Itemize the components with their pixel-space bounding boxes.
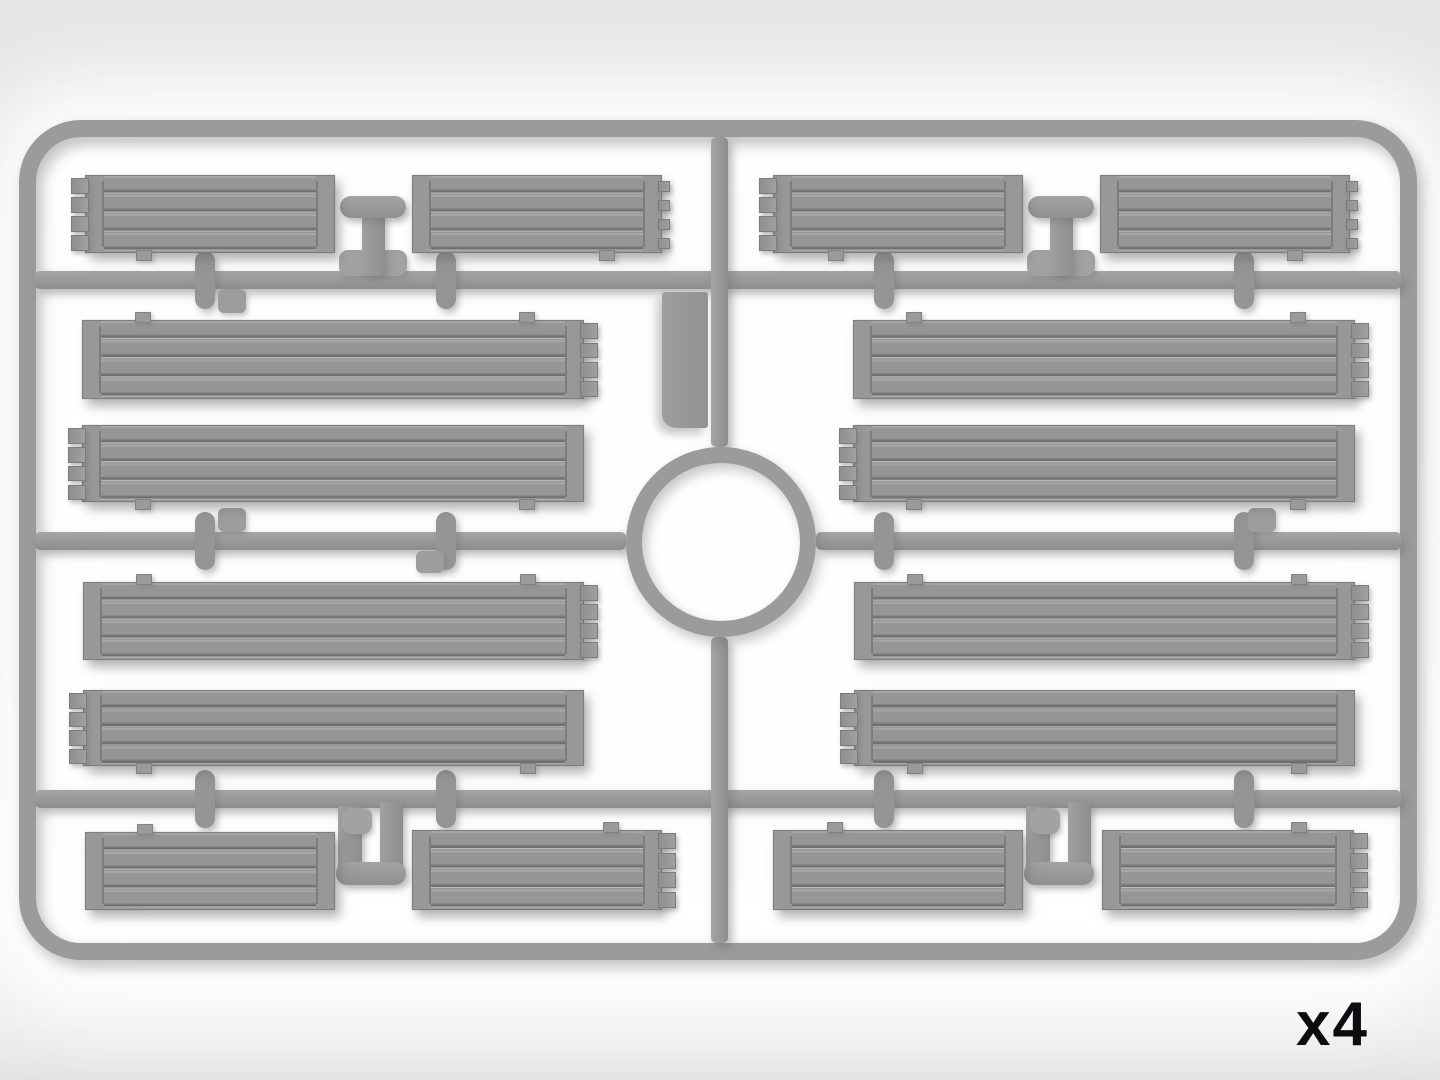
gate-web [218, 289, 246, 313]
gate-stub [195, 251, 215, 309]
bottom-connector-foot [342, 808, 372, 834]
edge-tab [1290, 312, 1306, 323]
hinge-tooth [658, 200, 670, 212]
gate-stub [436, 770, 456, 828]
plank-part [854, 690, 1355, 766]
hinge-tooth [1351, 362, 1369, 378]
plank-part [854, 582, 1355, 660]
plank-part [83, 690, 584, 766]
sprue-rail [35, 532, 626, 550]
t-connector-bar [1028, 196, 1094, 218]
hinge-tooth [68, 447, 86, 463]
plank-end-cap [316, 833, 334, 909]
edge-tab [137, 824, 153, 835]
plank-end-tick [102, 838, 104, 905]
hinge-tooth [658, 238, 670, 250]
plank-end-tick [1336, 588, 1338, 655]
hinge-tooth [68, 466, 86, 482]
t-connector-post [362, 214, 385, 276]
plank-end-tick [102, 181, 104, 248]
edge-tab [519, 499, 535, 510]
edge-tab [603, 822, 619, 833]
plank-end-tick [429, 181, 431, 248]
center-ring [626, 447, 816, 637]
hinge-tooth [580, 623, 598, 639]
hinge-tooth [71, 235, 89, 251]
hinge-tooth [69, 730, 87, 745]
plank-part [82, 320, 584, 399]
edge-tab [907, 763, 923, 774]
hinge-tooth [1351, 642, 1369, 658]
hinge-tooth [1350, 892, 1368, 908]
hinge-tooth [839, 466, 857, 482]
plank-end-cap [1336, 691, 1354, 765]
plank-end-tick [1004, 181, 1006, 248]
plank-end-tick [1336, 695, 1338, 760]
edge-tab [520, 574, 536, 585]
hinge-tooth [69, 693, 87, 708]
bottom-connector-bar [1024, 862, 1094, 885]
plank-end-tick [99, 431, 101, 497]
hinge-tooth [658, 872, 676, 888]
plank-end-tick [871, 588, 873, 655]
edge-tab [1290, 499, 1306, 510]
flat-tab-part [662, 292, 708, 428]
hinge-tooth [840, 693, 858, 708]
quantity-label: x4 [1296, 994, 1369, 1056]
plank-part [82, 425, 584, 502]
edge-tab [136, 574, 152, 585]
hinge-tooth [840, 730, 858, 745]
plank-end-tick [870, 326, 872, 394]
plank-end-tick [643, 836, 645, 905]
gate-stub [195, 512, 215, 570]
plank-end-cap [1336, 426, 1354, 501]
edge-tab [135, 499, 151, 510]
t-connector-post [1050, 214, 1073, 276]
hinge-tooth [840, 749, 858, 764]
hinge-tooth [68, 428, 86, 444]
gate-stub [1234, 770, 1254, 828]
hinge-tooth [71, 178, 89, 194]
gate-stub [874, 251, 894, 309]
plank-end-cap [565, 691, 583, 765]
hinge-tooth [580, 585, 598, 601]
edge-tab [906, 499, 922, 510]
hinge-tooth [759, 197, 777, 213]
hinge-tooth [759, 178, 777, 194]
hinge-tooth [580, 362, 598, 378]
plank-end-tick [1117, 181, 1119, 248]
plank-end-cap [1004, 176, 1022, 252]
plank-part [85, 832, 335, 910]
sprue-rail [816, 532, 1401, 550]
gate-web [218, 508, 246, 532]
plank-part [412, 175, 662, 253]
hinge-tooth [658, 219, 670, 231]
hinge-tooth [69, 749, 87, 764]
hinge-tooth [1351, 623, 1369, 639]
hinge-tooth [580, 343, 598, 359]
sprue-illustration: x4 [0, 0, 1440, 1080]
hinge-tooth [759, 216, 777, 232]
plank-end-tick [565, 695, 567, 760]
hinge-tooth [1351, 323, 1369, 339]
hinge-tooth [840, 712, 858, 727]
plank-end-tick [565, 588, 567, 655]
hinge-tooth [580, 642, 598, 658]
gate-web [1248, 508, 1276, 532]
hinge-tooth [658, 181, 670, 193]
edge-tab [519, 312, 535, 323]
hinge-tooth [1346, 219, 1358, 231]
plank-part [773, 830, 1023, 910]
sprue-frame-assembly [0, 0, 1440, 1080]
gate-stub [874, 770, 894, 828]
plank-end-tick [1335, 836, 1337, 905]
plank-part [83, 582, 584, 660]
hinge-tooth [1350, 872, 1368, 888]
plank-part [773, 175, 1023, 253]
plank-end-tick [870, 431, 872, 497]
edge-tab [827, 822, 843, 833]
hinge-tooth [68, 485, 86, 501]
plank-end-tick [565, 431, 567, 497]
gate-stub [195, 770, 215, 828]
hinge-tooth [69, 712, 87, 727]
plank-end-cap [316, 176, 334, 252]
bottom-connector-foot [1030, 808, 1060, 834]
hinge-tooth [1346, 238, 1358, 250]
gate-stub [1234, 251, 1254, 309]
plank-end-tick [565, 326, 567, 394]
hinge-tooth [658, 892, 676, 908]
hinge-tooth [580, 604, 598, 620]
bottom-connector-post [380, 802, 403, 868]
plank-end-tick [99, 326, 101, 394]
plank-end-cap [1004, 831, 1022, 909]
plank-end-tick [100, 695, 102, 760]
hinge-tooth [1351, 343, 1369, 359]
plank-end-tick [316, 838, 318, 905]
gate-web [416, 551, 444, 573]
hinge-tooth [1351, 604, 1369, 620]
plank-end-tick [1004, 836, 1006, 905]
plank-part [853, 425, 1355, 502]
hinge-tooth [1350, 833, 1368, 849]
sprue-rail [711, 637, 728, 943]
edge-tab [135, 312, 151, 323]
hinge-tooth [1346, 181, 1358, 193]
plank-end-tick [1336, 326, 1338, 394]
plank-part [1100, 175, 1350, 253]
plank-end-tick [316, 181, 318, 248]
plank-part [85, 175, 335, 253]
bottom-connector-bar [336, 862, 406, 885]
edge-tab [907, 574, 923, 585]
plank-end-tick [790, 836, 792, 905]
plank-end-tick [643, 181, 645, 248]
hinge-tooth [839, 485, 857, 501]
sprue-rail [711, 137, 728, 447]
plank-end-cap [565, 426, 583, 501]
plank-end-tick [1336, 431, 1338, 497]
edge-tab [1287, 250, 1303, 261]
plank-part [412, 830, 662, 910]
hinge-tooth [1351, 585, 1369, 601]
gate-stub [436, 251, 456, 309]
hinge-tooth [1351, 381, 1369, 397]
edge-tab [1291, 822, 1307, 833]
hinge-tooth [759, 235, 777, 251]
edge-tab [828, 250, 844, 261]
plank-part [853, 320, 1355, 399]
plank-end-tick [100, 588, 102, 655]
bottom-connector-post [1068, 802, 1091, 868]
edge-tab [1291, 763, 1307, 774]
edge-tab [520, 763, 536, 774]
hinge-tooth [658, 853, 676, 869]
hinge-tooth [839, 447, 857, 463]
hinge-tooth [658, 833, 676, 849]
edge-tab [599, 250, 615, 261]
plank-end-tick [871, 695, 873, 760]
edge-tab [1291, 574, 1307, 585]
hinge-tooth [580, 323, 598, 339]
plank-end-tick [1331, 181, 1333, 248]
plank-end-tick [429, 836, 431, 905]
gate-stub [874, 512, 894, 570]
hinge-tooth [1350, 853, 1368, 869]
plank-end-tick [790, 181, 792, 248]
hinge-tooth [71, 197, 89, 213]
edge-tab [136, 250, 152, 261]
edge-tab [906, 312, 922, 323]
edge-tab [136, 763, 152, 774]
t-connector-bar [340, 196, 406, 218]
hinge-tooth [1346, 200, 1358, 212]
hinge-tooth [71, 216, 89, 232]
plank-end-tick [1119, 836, 1121, 905]
hinge-tooth [580, 381, 598, 397]
plank-part [1102, 830, 1354, 910]
hinge-tooth [839, 428, 857, 444]
